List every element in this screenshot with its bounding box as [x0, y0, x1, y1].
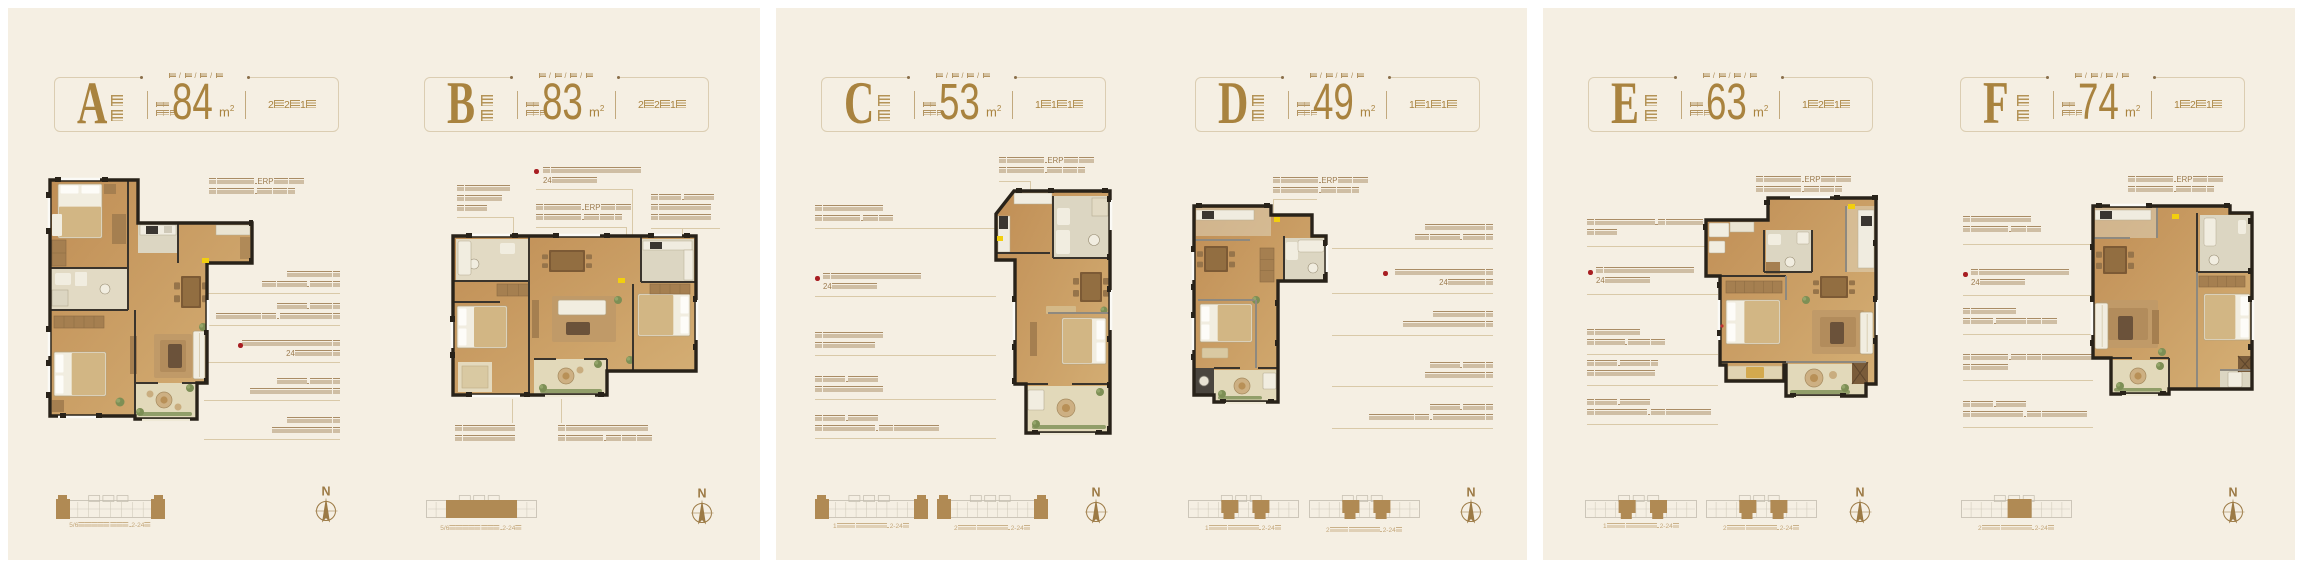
svg-text:N: N — [2228, 486, 2237, 500]
svg-text:N: N — [1855, 486, 1864, 500]
svg-text:N: N — [321, 485, 330, 499]
svg-text:N: N — [1091, 486, 1100, 500]
svg-text:N: N — [697, 487, 706, 501]
svg-text:N: N — [1466, 486, 1475, 500]
